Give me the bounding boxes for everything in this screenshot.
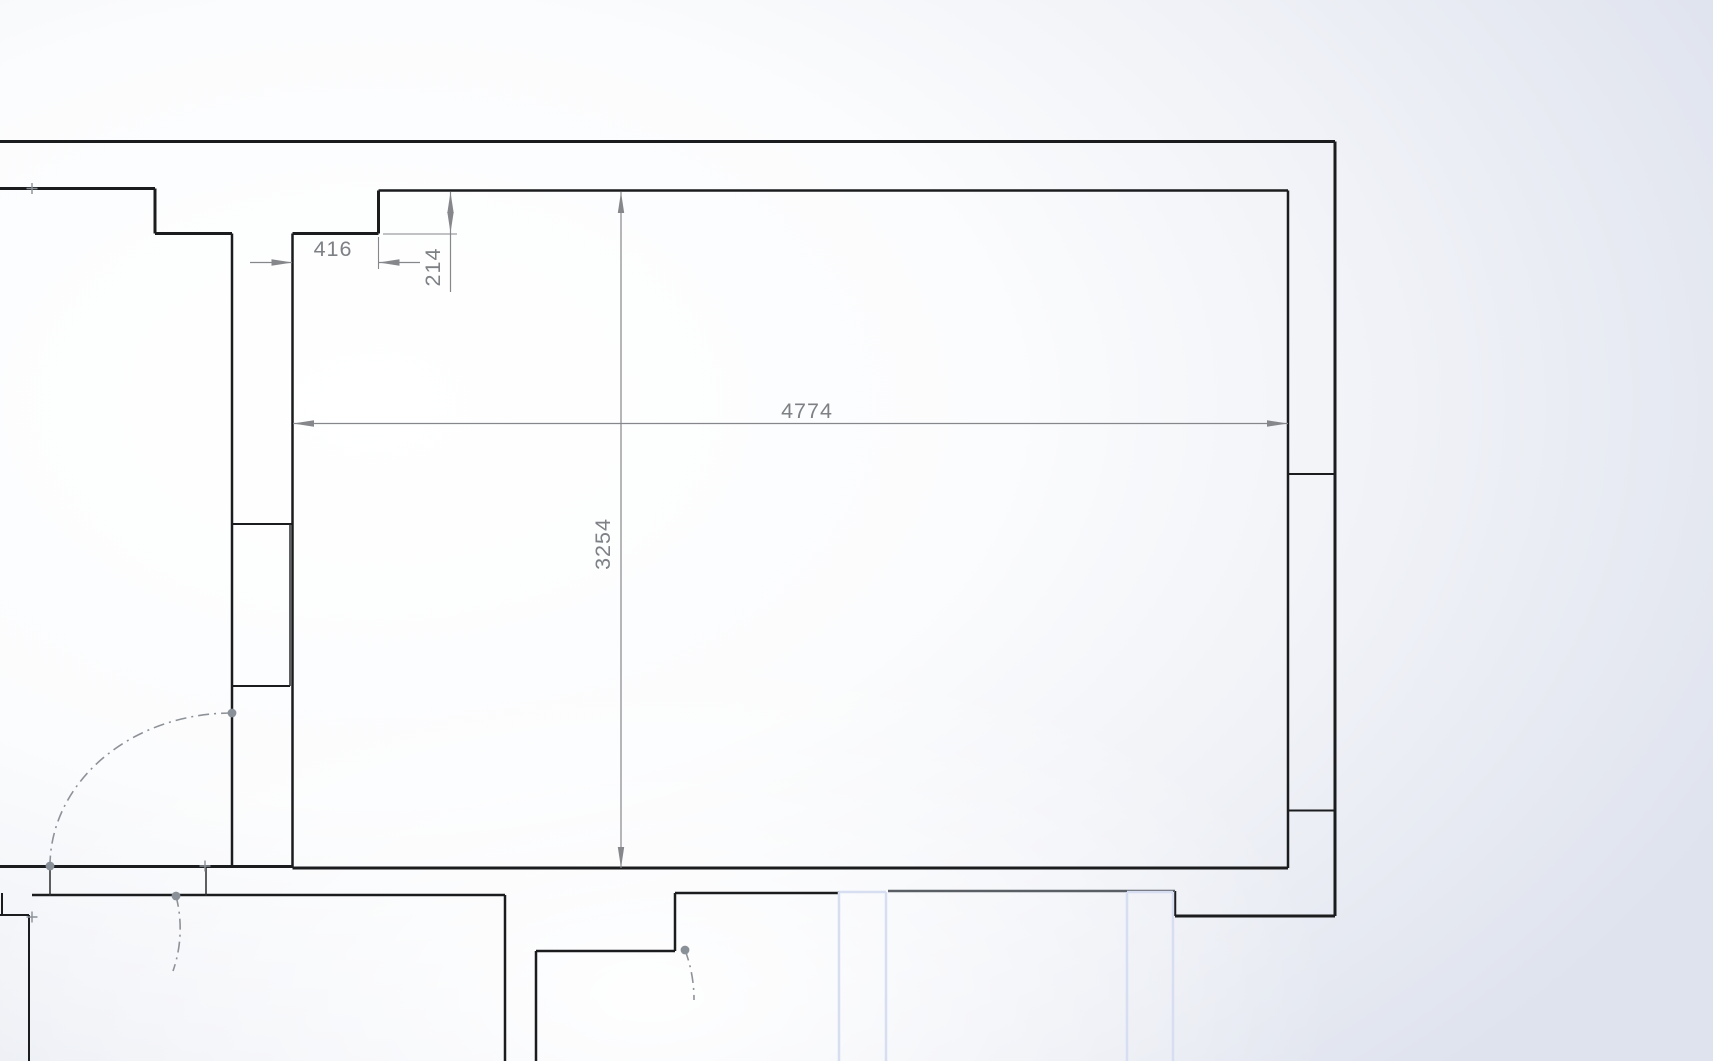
dimension-text[interactable]: 416 [314,237,353,261]
sketch-endpoint[interactable] [172,892,181,901]
dimension-text[interactable]: 4774 [781,399,833,423]
highlighted-edges-group[interactable] [839,892,1173,1061]
sketch-points-group[interactable] [27,183,690,954]
door-swing-arc[interactable] [173,896,180,971]
dimension-arrowhead [618,192,624,213]
sketch-endpoint[interactable] [228,709,237,718]
door-swing-group[interactable] [50,713,694,1000]
dimension-arrowhead [618,847,624,868]
walls-group[interactable] [0,142,1335,1061]
dimension-arrowhead [1267,420,1288,426]
sketch-point-cross [200,861,211,872]
dimension-arrowhead [447,212,453,233]
sketch-endpoint[interactable] [46,862,55,871]
dimension-arrowhead [293,420,314,426]
door-swing-arc[interactable] [50,713,232,866]
dimension-214[interactable]: 214 [383,192,457,292]
dimension-arrowhead [379,259,400,265]
dimension-arrowhead [447,192,453,213]
dimensions-group[interactable]: 41621447743254 [250,192,1288,868]
cad-viewport: 41621447743254 [0,0,1713,1061]
sketch-endpoint[interactable] [681,946,690,955]
dimension-416[interactable]: 416 [250,237,420,269]
dimension-4774[interactable]: 4774 [293,399,1288,427]
dimension-text[interactable]: 214 [421,248,445,287]
dimension-3254[interactable]: 3254 [591,192,624,868]
door-swing-arc[interactable] [685,950,694,1000]
floor-plan-drawing[interactable]: 41621447743254 [0,0,1713,1061]
sketch-point-cross [27,183,38,194]
dimension-text[interactable]: 3254 [591,518,615,570]
dimension-arrowhead [272,259,293,265]
